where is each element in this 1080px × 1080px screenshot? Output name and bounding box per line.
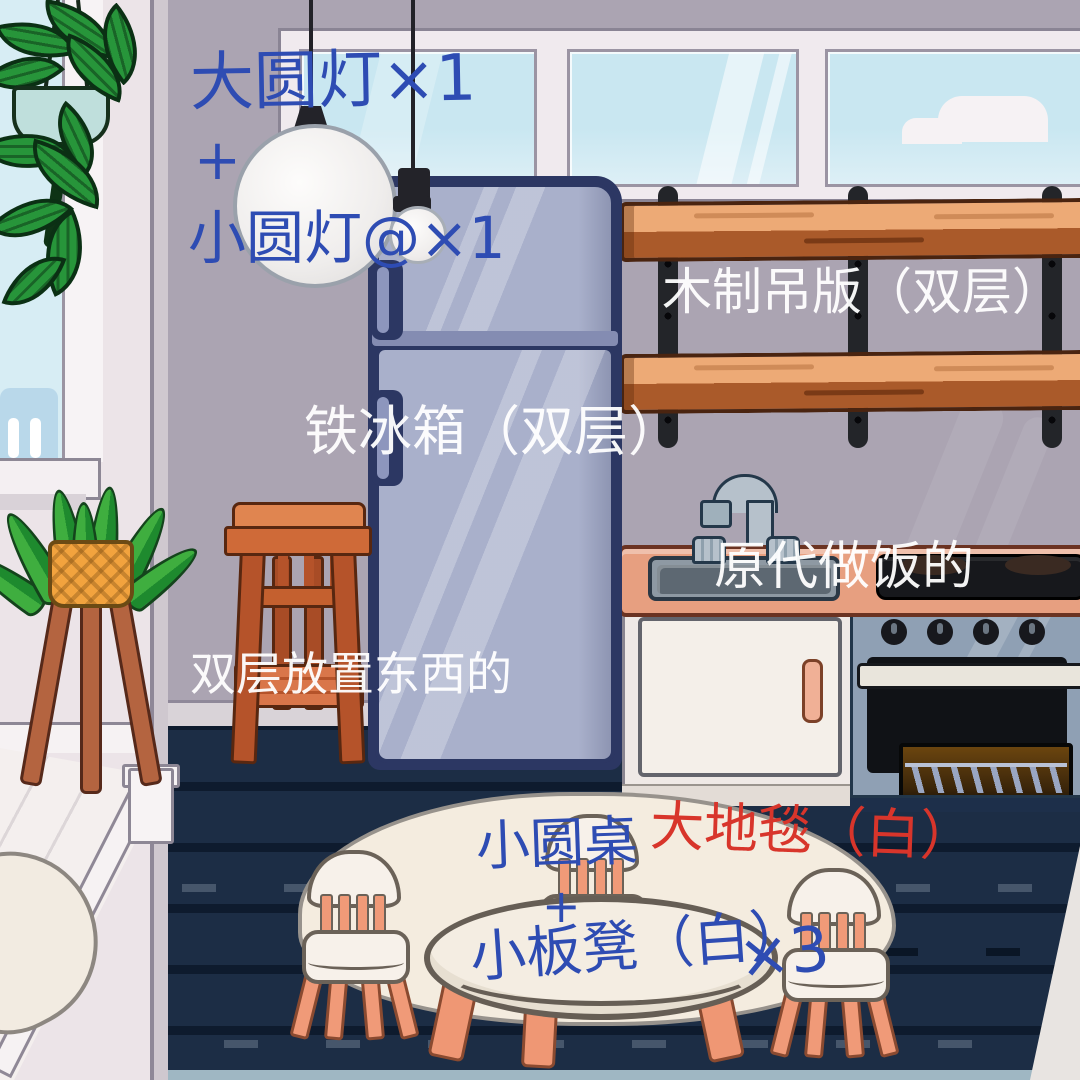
building-window [8,418,19,458]
annotation-rug: 大地毯（白） [649,798,975,866]
wooden-wall-shelf-upper[interactable] [620,198,1080,262]
cabinet-handle[interactable] [802,659,823,723]
annotation-stools-count: ×3 [735,915,833,989]
oven-rack [905,763,1067,793]
annotation-fridge: 铁冰箱（双层） [304,404,682,461]
wooden-wall-shelf-lower[interactable] [620,350,1080,414]
building-window [30,418,41,458]
distant-building [0,388,58,462]
sink-cabinet[interactable] [622,606,856,792]
annotation-small-lamp: 小圆灯@×1 [188,208,506,269]
fridge-door-gap [372,331,618,346]
toca-style-kitchen-scene: 大圆灯×1 + 小圆灯@×1 木制吊版（双层） 铁冰箱（双层） 原代做饭的 双层… [0,0,1080,1080]
oven[interactable] [850,606,1080,798]
oven-window [899,743,1073,798]
annotation-big-lamp: 大圆灯×1 [189,46,476,118]
window-sill-shadow [0,494,86,510]
oven-knob[interactable] [1019,619,1045,645]
oven-knob[interactable] [927,619,953,645]
annotation-plus-top: + [194,132,241,191]
window-pane [567,49,799,187]
fridge-handle-top[interactable] [371,260,403,340]
annotation-table: 小圆桌 [475,813,639,875]
alcove-baseboard [0,722,152,753]
annotation-stool: 双层放置东西的 [190,650,512,698]
woven-plant-pot[interactable] [48,540,134,608]
plant-stand-leg [80,598,102,794]
annotation-shelf: 木制吊版（双层） [662,266,1062,319]
cloud [938,96,1048,142]
faucet-spout[interactable] [700,500,732,528]
stove-burner [1005,555,1071,575]
oven-door-handle[interactable] [857,663,1080,689]
window-pane [825,49,1080,187]
chair-seat [302,930,410,984]
annotation-cooker: 原代做饭的 [714,540,974,595]
small-chair-left[interactable] [302,850,402,1040]
stool-top-edge [224,526,372,556]
oven-knob[interactable] [881,619,907,645]
cabinet-door[interactable] [638,617,842,777]
oven-knob[interactable] [973,619,999,645]
